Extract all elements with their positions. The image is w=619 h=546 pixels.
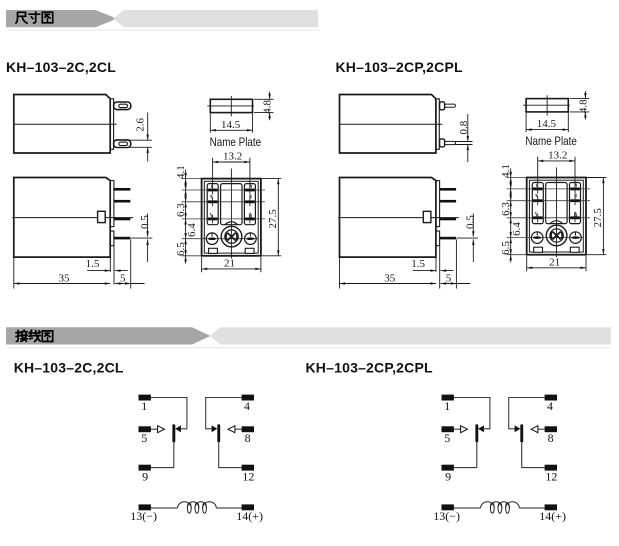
svg-text:1: 1 xyxy=(141,399,147,413)
svg-text:KH–103–2CP,2CPL: KH–103–2CP,2CPL xyxy=(306,359,434,375)
svg-text:2.6: 2.6 xyxy=(135,118,147,132)
svg-text:6.3: 6.3 xyxy=(175,203,187,217)
svg-text:0.5: 0.5 xyxy=(139,215,151,229)
svg-text:KH–103–2C,2CL: KH–103–2C,2CL xyxy=(14,359,124,375)
svg-text:14.5: 14.5 xyxy=(221,119,241,131)
svg-text:Name Plate: Name Plate xyxy=(210,135,262,149)
svg-text:6.5: 6.5 xyxy=(175,242,187,256)
svg-text:1.5: 1.5 xyxy=(411,258,425,270)
svg-text:14(+): 14(+) xyxy=(236,509,263,523)
svg-text:9: 9 xyxy=(142,470,148,484)
svg-text:5: 5 xyxy=(141,431,147,445)
svg-text:21: 21 xyxy=(224,257,235,269)
svg-text:13.2: 13.2 xyxy=(223,151,242,163)
svg-text:4: 4 xyxy=(244,399,250,413)
svg-text:4.8: 4.8 xyxy=(262,100,274,114)
svg-text:1.5: 1.5 xyxy=(86,258,100,270)
svg-text:KH–103–2CP,2CPL: KH–103–2CP,2CPL xyxy=(336,59,464,75)
svg-text:8: 8 xyxy=(245,431,251,445)
svg-text:27.5: 27.5 xyxy=(267,209,279,229)
svg-text:12: 12 xyxy=(242,470,254,484)
svg-text:KH–103–2C,2CL: KH–103–2C,2CL xyxy=(6,59,116,75)
svg-text:5: 5 xyxy=(446,273,452,285)
svg-text:4.1: 4.1 xyxy=(175,165,187,179)
svg-text:5: 5 xyxy=(120,273,126,285)
svg-text:0.5: 0.5 xyxy=(465,215,477,229)
svg-text:6.4: 6.4 xyxy=(186,223,198,237)
svg-text:35: 35 xyxy=(59,273,71,285)
svg-text:13(−): 13(−) xyxy=(130,509,157,523)
svg-text:35: 35 xyxy=(384,273,396,285)
svg-text:0.8: 0.8 xyxy=(458,120,470,134)
